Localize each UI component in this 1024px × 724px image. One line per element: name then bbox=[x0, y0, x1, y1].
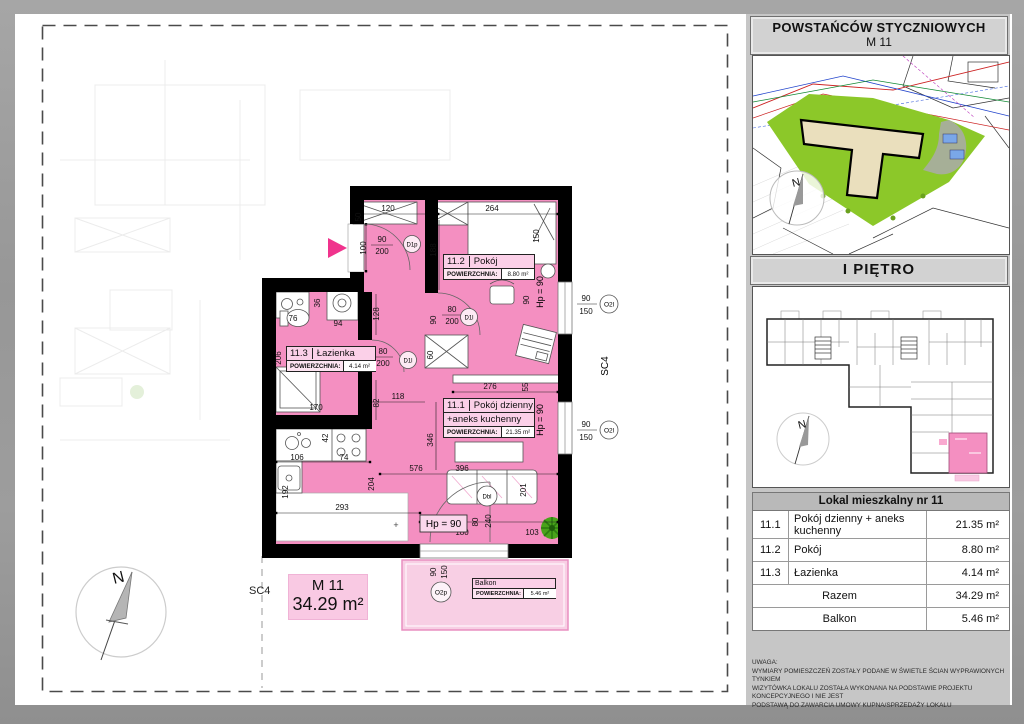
dim: 80 bbox=[448, 305, 457, 314]
table bbox=[455, 442, 523, 462]
area-value: 5.46 m² bbox=[523, 589, 556, 598]
dim: 201 bbox=[519, 483, 528, 497]
disclaimer-line: PODSTAWĄ DO ZAWARCIA UMOWY KUPNA/SPRZEDA… bbox=[752, 702, 1008, 711]
row-name: Łazienka bbox=[789, 562, 927, 584]
balcony-label: Balkon POWIERZCHNIA:5.46 m² bbox=[472, 578, 556, 599]
dim: 200 bbox=[375, 247, 389, 256]
room-name-line2: +aneks kuchenny bbox=[443, 413, 535, 427]
dim: 106 bbox=[290, 453, 304, 462]
row-number: 11.2 bbox=[753, 539, 789, 561]
row-area: 8.80 m² bbox=[927, 539, 1009, 561]
dim: 206 bbox=[274, 351, 283, 365]
areas-table: Lokal mieszkalny nr 11 11.1 Pokój dzienn… bbox=[752, 492, 1010, 631]
dim: 204 bbox=[367, 477, 376, 491]
dim: 118 bbox=[392, 392, 405, 401]
drawing-sheet-window: 50 120 264 90 200 100 188 150 90 80 200 … bbox=[0, 0, 1024, 724]
room-number: 11.1 bbox=[447, 400, 470, 411]
area-value: 21.35 m² bbox=[501, 427, 534, 437]
dim: 103 bbox=[525, 528, 539, 537]
table-row: 11.3 Łazienka 4.14 m² bbox=[753, 562, 1009, 585]
door-tag: Dbl bbox=[482, 495, 491, 501]
row-number: 11.1 bbox=[753, 511, 789, 538]
dim: 90 bbox=[429, 315, 438, 324]
room-label-11-1: 11.1Pokój dzienny +aneks kuchenny POWIER… bbox=[443, 398, 535, 438]
chair bbox=[490, 286, 514, 304]
row-area: 21.35 m² bbox=[927, 511, 1009, 538]
area-value: 8.80 m² bbox=[501, 269, 534, 279]
area-label: POWIERZCHNIA: bbox=[473, 589, 523, 598]
nightstand bbox=[541, 264, 555, 278]
site-compass-icon: N bbox=[770, 171, 824, 225]
dim: 94 bbox=[334, 319, 343, 328]
sill-height-label: Hp = 90 bbox=[535, 276, 545, 308]
table-row: 11.2 Pokój 8.80 m² bbox=[753, 539, 1009, 562]
area-label: POWIERZCHNIA: bbox=[287, 361, 343, 371]
dim: 240 bbox=[484, 514, 493, 528]
dim: 346 bbox=[426, 433, 435, 447]
dim: 128 bbox=[372, 307, 381, 321]
balcony-label: Balkon bbox=[753, 608, 927, 630]
dim: 90 bbox=[429, 567, 438, 576]
room-name: Łazienka bbox=[317, 348, 355, 359]
dim: 90 bbox=[522, 295, 531, 304]
dim: 264 bbox=[485, 204, 499, 213]
row-number: 11.3 bbox=[753, 562, 789, 584]
room-name: Pokój dzienny bbox=[474, 400, 533, 411]
dim: 188 bbox=[429, 243, 438, 257]
disclaimer-line: WYMIARY POMIESZCZEŃ ZOSTAŁY PODANE W ŚWI… bbox=[752, 668, 1008, 685]
floor-header: I PIĘTRO bbox=[750, 256, 1008, 285]
area-value: 4.14 m² bbox=[343, 361, 376, 371]
floor-overview: N bbox=[752, 286, 1010, 488]
shelf bbox=[453, 375, 560, 383]
dim: 74 bbox=[340, 453, 349, 462]
row-name: Pokój dzienny + aneks kuchenny bbox=[789, 511, 927, 538]
window-tag: O2p bbox=[435, 590, 448, 597]
row-name: Pokój bbox=[789, 539, 927, 561]
dim: 576 bbox=[409, 464, 423, 473]
dim: 150 bbox=[440, 565, 449, 579]
door-tag: D1l bbox=[403, 359, 412, 365]
window-tag: O2l bbox=[604, 302, 615, 309]
dim: 90 bbox=[378, 235, 387, 244]
disclaimer-line: WIZYTÓWKA LOKALU ZOSTAŁA WYKONANA NA POD… bbox=[752, 685, 1008, 702]
row-area: 4.14 m² bbox=[927, 562, 1009, 584]
dim: 50 bbox=[354, 212, 363, 221]
table-total-row: Razem 34.29 m² bbox=[753, 585, 1009, 608]
table-row: 11.1 Pokój dzienny + aneks kuchenny 21.3… bbox=[753, 511, 1009, 539]
stove bbox=[332, 429, 366, 461]
ghost-plant bbox=[130, 385, 144, 399]
dim: 396 bbox=[455, 464, 469, 473]
north-label: N bbox=[111, 569, 126, 588]
unit-area-badge: M 11 34.29 m² bbox=[288, 574, 368, 620]
dim: 82 bbox=[372, 398, 381, 407]
site-map: N bbox=[752, 55, 1010, 255]
plus-mark: + bbox=[393, 520, 398, 530]
north-compass-icon: N bbox=[70, 558, 172, 670]
dim: 36 bbox=[313, 298, 322, 307]
door-tag: D1l bbox=[464, 316, 473, 322]
room-label-11-3: 11.3Łazienka POWIERZCHNIA:4.14 m² bbox=[286, 346, 376, 372]
dim: 60 bbox=[426, 350, 435, 359]
dim: 76 bbox=[289, 314, 298, 323]
dim: 150 bbox=[579, 433, 593, 442]
unit-area: 34.29 m² bbox=[289, 594, 367, 615]
parking bbox=[943, 134, 957, 143]
dim: 100 bbox=[359, 241, 368, 255]
dim: 80 bbox=[379, 347, 388, 356]
staircase-label: SC4 bbox=[249, 585, 270, 597]
sill-height-label: Hp = 90 bbox=[535, 404, 545, 436]
room-name: Balkon bbox=[475, 580, 496, 587]
entrance-arrow-icon bbox=[328, 238, 347, 258]
dim: 200 bbox=[445, 317, 459, 326]
project-header: POWSTAŃCÓW STYCZNIOWYCH M 11 bbox=[750, 16, 1008, 55]
dim: 80 bbox=[471, 517, 480, 526]
dim: 200 bbox=[376, 359, 390, 368]
total-label: Razem bbox=[753, 585, 927, 607]
street-name: POWSTAŃCÓW STYCZNIOWYCH bbox=[751, 17, 1007, 35]
room-number: 11.2 bbox=[447, 256, 470, 267]
dim: 90 bbox=[582, 294, 591, 303]
dim: 90 bbox=[582, 420, 591, 429]
sill-height-label: Hp = 90 bbox=[426, 519, 462, 530]
dim: 150 bbox=[532, 229, 541, 243]
dim: 293 bbox=[335, 503, 349, 512]
dim: 42 bbox=[321, 433, 330, 442]
dim: 120 bbox=[381, 204, 395, 213]
area-label: POWIERZCHNIA: bbox=[444, 427, 501, 437]
room-label-11-2: 11.2Pokój POWIERZCHNIA:8.80 m² bbox=[443, 254, 535, 280]
utility-pocket bbox=[276, 493, 408, 541]
total-area: 34.29 m² bbox=[927, 585, 1009, 607]
staircase-label: SC4 bbox=[600, 356, 611, 376]
dim: 55 bbox=[521, 382, 530, 391]
unit-name: M 11 bbox=[289, 575, 367, 594]
dim: 276 bbox=[483, 382, 497, 391]
dim: 192 bbox=[281, 485, 290, 499]
room-number: 11.3 bbox=[290, 348, 313, 359]
parking bbox=[950, 150, 964, 159]
disclaimer-line: UWAGA: bbox=[752, 659, 1008, 668]
window-tag: O2l bbox=[604, 428, 615, 435]
door-tag: D1p bbox=[406, 243, 418, 249]
area-label: POWIERZCHNIA: bbox=[444, 269, 501, 279]
table-title: Lokal mieszkalny nr 11 bbox=[753, 493, 1009, 511]
room-name: Pokój bbox=[474, 256, 498, 267]
unit-number: M 11 bbox=[751, 35, 1007, 49]
disclaimer: UWAGA: WYMIARY POMIESZCZEŃ ZOSTAŁY PODAN… bbox=[752, 659, 1008, 711]
dim: 150 bbox=[579, 307, 593, 316]
balcony-area: 5.46 m² bbox=[927, 608, 1009, 630]
dim: 170 bbox=[309, 403, 323, 412]
table-balcony-row: Balkon 5.46 m² bbox=[753, 608, 1009, 630]
